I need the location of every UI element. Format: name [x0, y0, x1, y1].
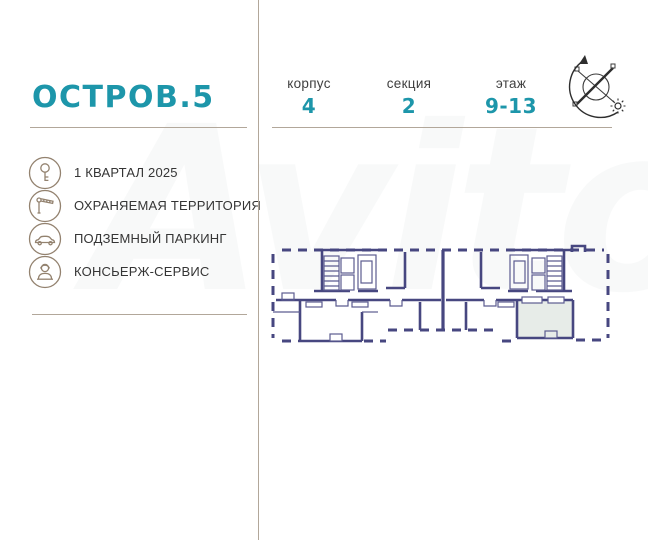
listing-image: Avito ОСТРОВ.5 1 КВАРТАЛ 2025	[0, 0, 648, 540]
floor-plan	[0, 0, 648, 540]
